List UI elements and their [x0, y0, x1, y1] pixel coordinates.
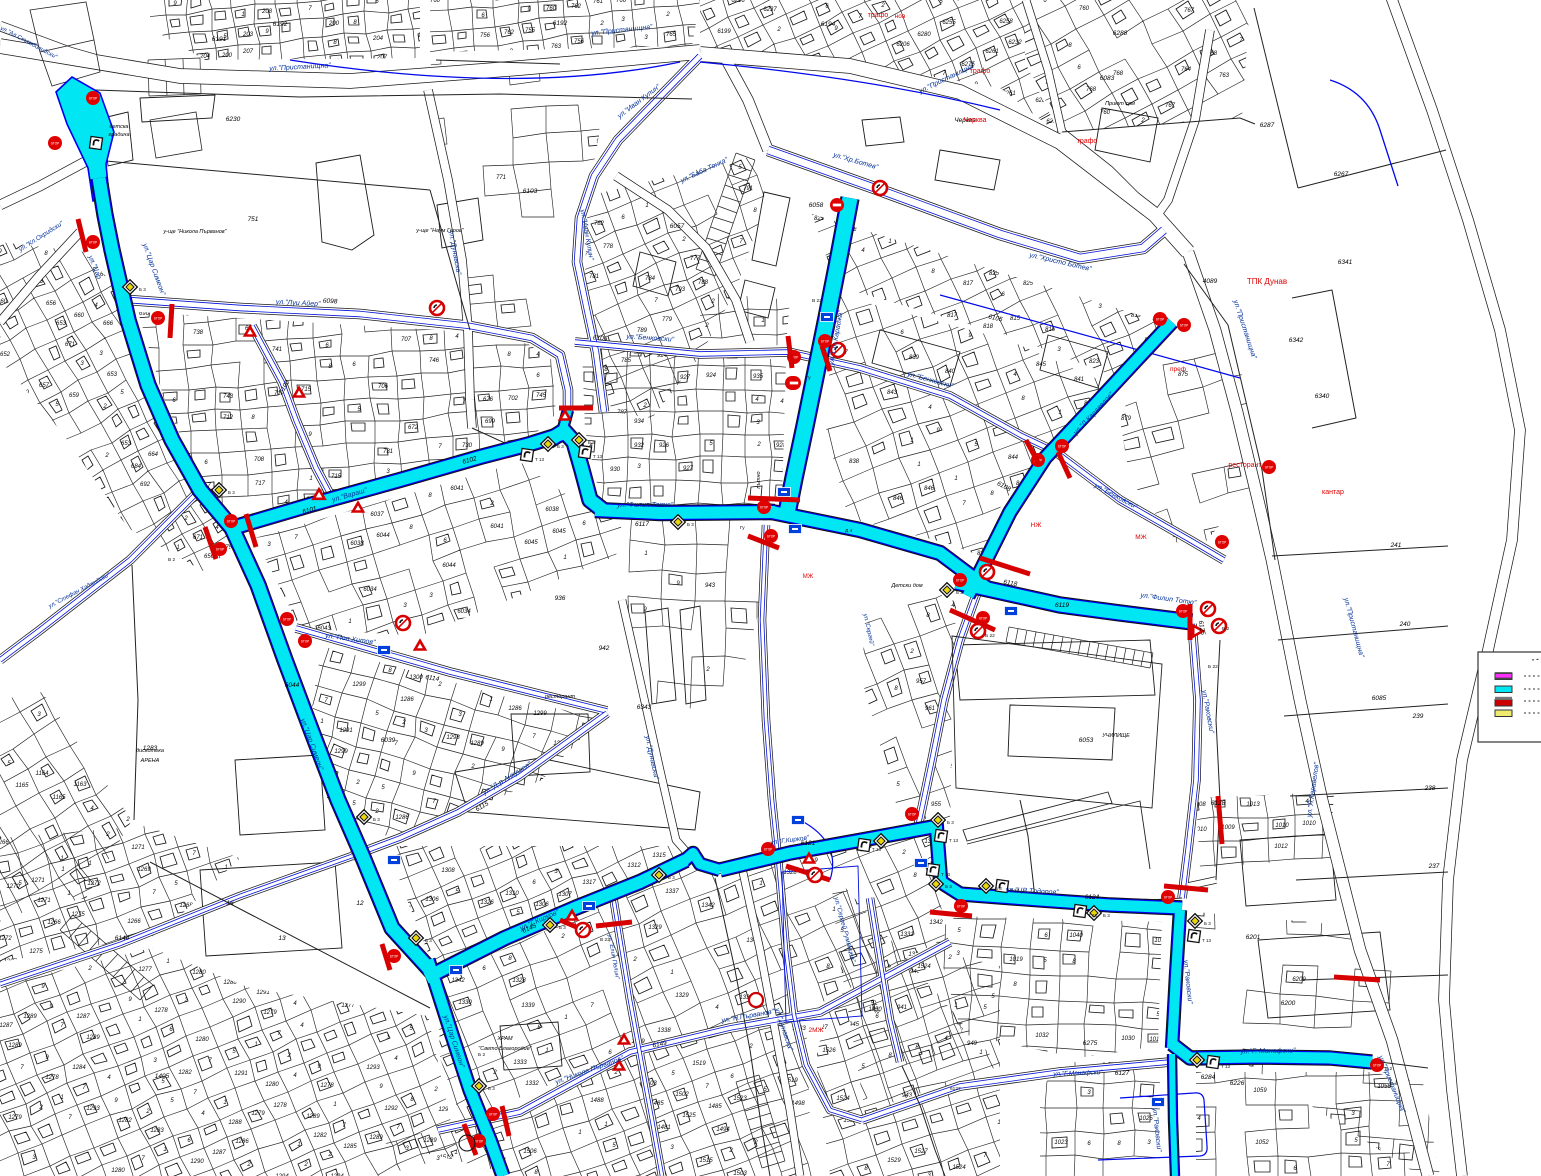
svg-text:МЖ: МЖ	[803, 574, 814, 580]
svg-text:Черква: Черква	[963, 117, 986, 124]
svg-text:6127: 6127	[1115, 1070, 1130, 1077]
svg-text:STOP: STOP	[821, 339, 830, 343]
svg-text:751: 751	[248, 216, 259, 223]
svg-text:"Свето Благородие": "Свето Благородие"	[478, 1046, 533, 1052]
svg-text:Б 3: Б 3	[228, 490, 235, 495]
svg-text:6044: 6044	[285, 682, 300, 689]
svg-text:Гу: Гу	[806, 375, 811, 381]
svg-text:936: 936	[555, 595, 566, 602]
svg-text:Б 3: Б 3	[557, 444, 564, 449]
svg-text:6192: 6192	[553, 20, 568, 27]
svg-text:STOP: STOP	[979, 616, 988, 620]
svg-text:6039: 6039	[381, 737, 396, 744]
svg-text:дискотека: дискотека	[136, 748, 164, 754]
svg-text:Б 2: Б 2	[478, 1052, 485, 1058]
svg-text:Б 2: Б 2	[1385, 1066, 1392, 1072]
svg-text:ресторант: ресторант	[1228, 462, 1262, 469]
svg-text:преф: преф	[1170, 366, 1187, 373]
svg-text:Б 3: Б 3	[588, 440, 595, 445]
svg-text:6119: 6119	[1055, 602, 1069, 609]
svg-text:Т 13: Т 13	[1221, 1064, 1231, 1069]
svg-text:Т 13: Т 13	[872, 847, 882, 852]
svg-text:Т 13: Т 13	[1010, 888, 1020, 893]
svg-text:у-ще "Наум Геров": у-ще "Наум Геров"	[415, 228, 464, 234]
svg-text:Б 3: Б 3	[425, 938, 432, 943]
svg-text:пътно: пътно	[756, 471, 762, 488]
svg-text:Б 3: Б 3	[995, 886, 1002, 891]
svg-text:6342: 6342	[1289, 337, 1304, 344]
svg-text:Б 3: Б 3	[559, 925, 566, 930]
svg-text:трафо: трафо	[970, 68, 991, 75]
svg-text:Б 3: Б 3	[687, 522, 694, 527]
svg-text:1405: 1405	[155, 1073, 170, 1080]
svg-text:STOP: STOP	[956, 578, 965, 582]
svg-text:Детски дом: Детски дом	[890, 583, 922, 589]
svg-text:4089: 4089	[1203, 278, 1218, 285]
svg-text:6121: 6121	[801, 840, 816, 847]
svg-text:УЧИЛИЩЕ: УЧИЛИЩЕ	[1101, 733, 1130, 739]
svg-text:STOP: STOP	[764, 847, 773, 851]
svg-text:6058: 6058	[809, 202, 824, 209]
svg-text:Т 13: Т 13	[1202, 938, 1212, 943]
svg-text:12: 12	[356, 900, 364, 907]
svg-text:16: 16	[226, 900, 234, 907]
svg-text:ХРАМ: ХРАМ	[496, 1036, 513, 1042]
svg-text:STOP: STOP	[390, 954, 399, 958]
svg-text:6127: 6127	[950, 1086, 961, 1092]
svg-text:STOP: STOP	[1164, 895, 1173, 899]
svg-text:241: 241	[1390, 542, 1402, 549]
svg-text:STOP: STOP	[1265, 465, 1274, 469]
svg-text:ресторант: ресторант	[544, 694, 576, 700]
svg-text:6288: 6288	[1113, 30, 1128, 37]
svg-text:АРЕНА: АРЕНА	[140, 758, 160, 764]
svg-text:Т 13: Т 13	[535, 457, 545, 462]
svg-text:6284: 6284	[1201, 1074, 1216, 1081]
svg-text:Б 22: Б 22	[1208, 664, 1218, 670]
svg-text:STOP: STOP	[1156, 317, 1165, 321]
svg-text:STOP: STOP	[760, 505, 769, 509]
svg-text:детска: детска	[110, 124, 129, 130]
svg-text:Д 4: Д 4	[845, 528, 853, 534]
svg-text:STOP: STOP	[1058, 444, 1067, 448]
svg-text:Т 13: Т 13	[1088, 913, 1098, 918]
svg-text:STOP: STOP	[89, 240, 98, 244]
svg-text:Т 13: Т 13	[941, 872, 951, 877]
svg-text:6106: 6106	[593, 335, 608, 343]
svg-text:6267: 6267	[1334, 171, 1349, 178]
svg-text:STOP: STOP	[301, 639, 310, 643]
svg-text:градина: градина	[108, 132, 129, 138]
svg-text:Б 3: Б 3	[945, 884, 952, 889]
svg-text:ул.”Филип Тотю”: ул.”Филип Тотю”	[616, 502, 674, 509]
svg-text:6117: 6117	[635, 521, 649, 528]
svg-text:ТПК Дунав: ТПК Дунав	[1247, 277, 1287, 286]
svg-text:6144: 6144	[115, 935, 130, 942]
svg-text:Б 3: Б 3	[1103, 913, 1110, 918]
svg-text:6128: 6128	[1211, 800, 1226, 807]
svg-text:трафо: трафо	[1077, 138, 1098, 145]
svg-text:2МЖ: 2МЖ	[808, 1027, 823, 1034]
svg-text:ул.”Г. Манафски”: ул.”Г. Манафски”	[1239, 1048, 1296, 1056]
svg-text:STOP: STOP	[216, 547, 225, 551]
svg-text:Б 22: Б 22	[985, 633, 995, 639]
svg-text:STOP: STOP	[1180, 323, 1189, 327]
svg-text:237: 237	[1428, 863, 1440, 870]
svg-text:STOP: STOP	[1179, 609, 1188, 613]
svg-text:13: 13	[278, 935, 286, 942]
svg-text:трафо: трафо	[868, 12, 889, 19]
svg-text:STOP: STOP	[51, 141, 60, 145]
svg-text:Б 3: Б 3	[139, 287, 146, 292]
svg-text:6098: 6098	[323, 298, 338, 306]
svg-text:нов: нов	[895, 13, 906, 20]
svg-text:кантар: кантар	[1322, 489, 1344, 496]
svg-text:Б 3: Б 3	[956, 590, 963, 595]
svg-text:6085: 6085	[1372, 695, 1387, 702]
svg-text:6200: 6200	[1281, 1000, 1296, 1007]
svg-text:STOP: STOP	[489, 1112, 498, 1116]
svg-text:STOP: STOP	[154, 316, 163, 320]
svg-text:6230: 6230	[226, 116, 241, 123]
svg-text:6053: 6053	[1079, 737, 1094, 744]
svg-text:Б 2: Б 2	[1222, 626, 1229, 632]
svg-text:МЖ: МЖ	[1135, 534, 1146, 541]
svg-text:STOP: STOP	[767, 534, 776, 538]
svg-text:6275: 6275	[1083, 1040, 1098, 1047]
svg-text:238: 238	[1424, 785, 1436, 792]
svg-text:НЖ: НЖ	[1031, 522, 1042, 529]
svg-text:Приют срм: Приют срм	[1105, 101, 1135, 107]
svg-text:В 22: В 22	[600, 937, 610, 943]
svg-text:STOP: STOP	[957, 904, 966, 908]
svg-text:6192: 6192	[273, 21, 288, 28]
svg-text:6343: 6343	[637, 704, 652, 711]
svg-text:Т 13: Т 13	[593, 454, 603, 459]
svg-text:STOP: STOP	[908, 812, 917, 816]
svg-text:Б 3: Б 3	[373, 817, 380, 822]
svg-text:В 2: В 2	[168, 557, 176, 563]
svg-text:STOP: STOP	[283, 617, 292, 621]
svg-text:у-ще "Никола Първанов": у-ще "Никола Първанов"	[162, 229, 227, 235]
svg-text:6341: 6341	[1338, 259, 1353, 266]
svg-text:STOP: STOP	[1218, 540, 1227, 544]
svg-text:240: 240	[1399, 621, 1411, 628]
svg-text:6226: 6226	[1230, 1080, 1245, 1087]
svg-text:Гу: Гу	[740, 525, 745, 531]
svg-text:Т 13: Т 13	[949, 838, 959, 843]
svg-text:Б 3: Б 3	[1204, 921, 1211, 926]
svg-text:STOP: STOP	[475, 1139, 484, 1143]
svg-text:6287: 6287	[1260, 122, 1275, 129]
svg-text:942: 942	[599, 645, 610, 652]
svg-text:239: 239	[1412, 713, 1424, 720]
svg-text:6057: 6057	[670, 223, 685, 230]
svg-text:6083: 6083	[1100, 75, 1115, 82]
svg-text:6124: 6124	[1085, 894, 1100, 901]
svg-text:Б 3: Б 3	[947, 820, 954, 825]
svg-text:6201: 6201	[1246, 934, 1261, 941]
svg-text:В 22: В 22	[812, 298, 822, 304]
svg-text:6194: 6194	[821, 21, 836, 28]
svg-text:6191: 6191	[212, 36, 227, 43]
svg-text:6340: 6340	[1315, 393, 1330, 400]
svg-text:Б 3: Б 3	[488, 1086, 495, 1091]
svg-text:6103: 6103	[523, 188, 538, 195]
svg-text:Б 3: Б 3	[668, 875, 675, 880]
svg-text:STOP: STOP	[227, 519, 236, 523]
svg-text:STOP: STOP	[89, 96, 98, 100]
